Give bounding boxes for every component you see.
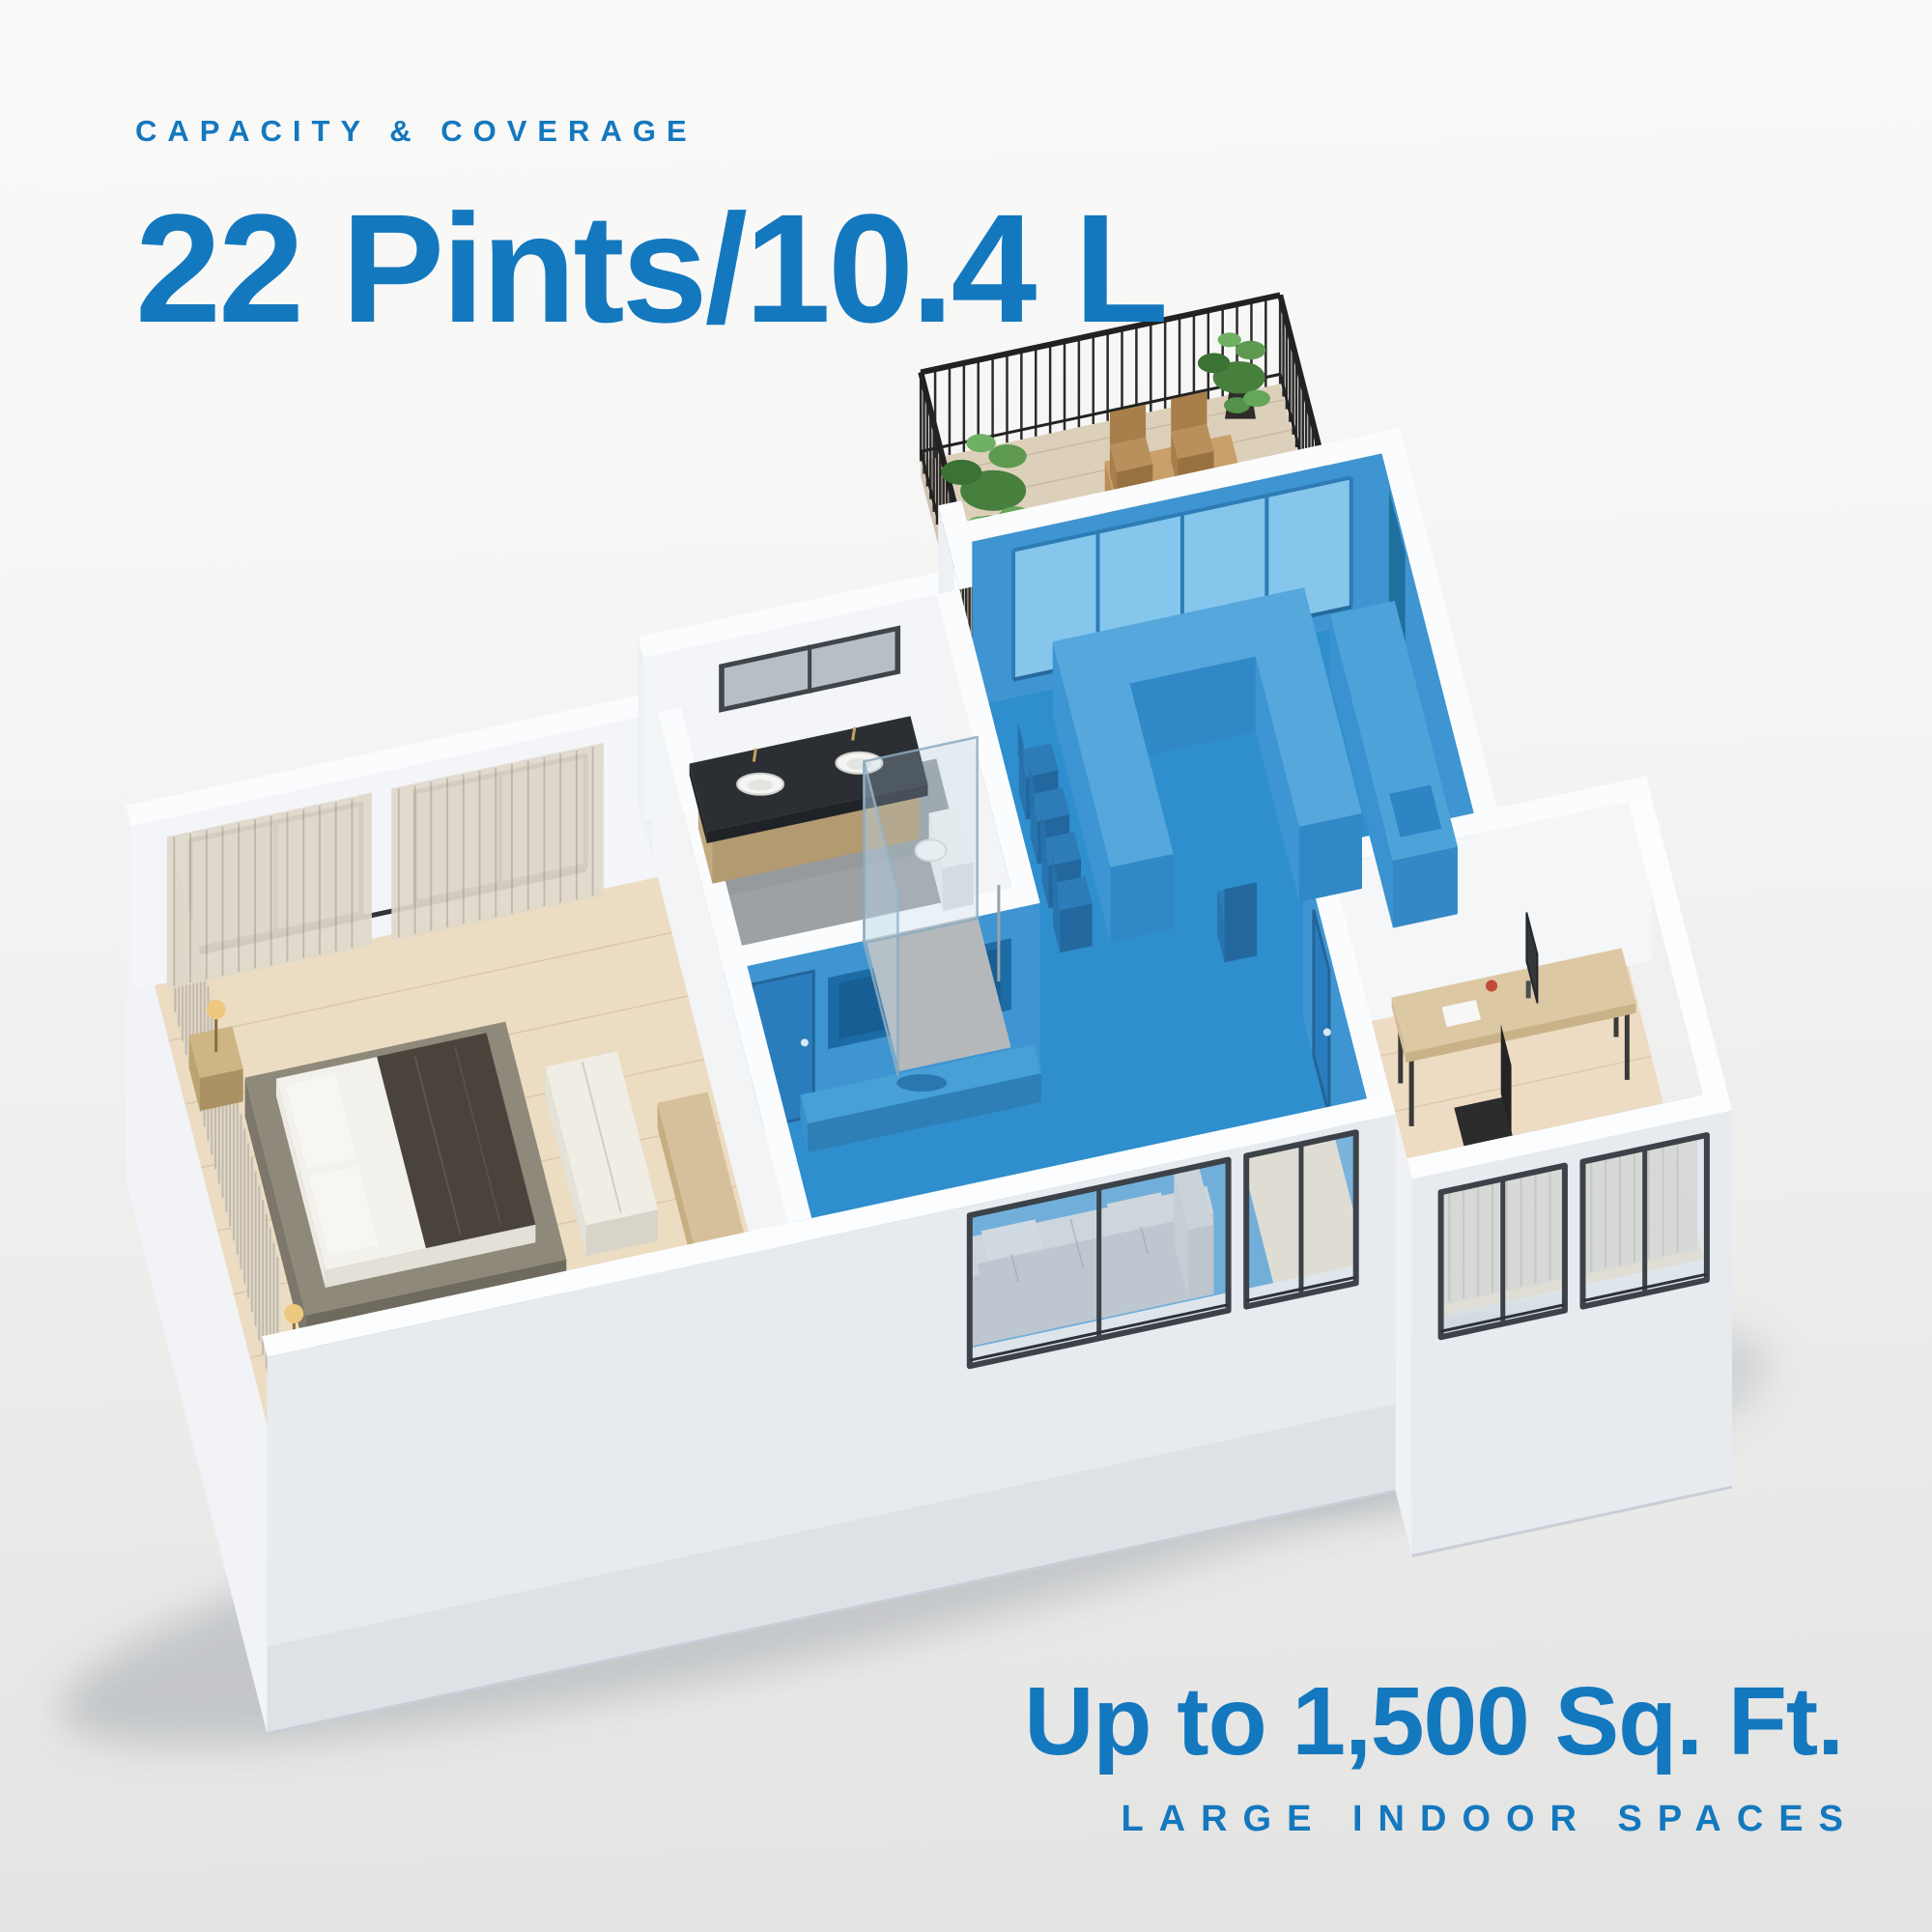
page-title: 22 Pints/10.4 L <box>135 191 1166 346</box>
coverage-headline: Up to 1,500 Sq. Ft. <box>1024 1673 1843 1770</box>
coverage-block: Up to 1,500 Sq. Ft. LARGE INDOOR SPACES <box>1024 1673 1843 1840</box>
coverage-subheadline: LARGE INDOOR SPACES <box>1024 1799 1859 1840</box>
page-background: CAPACITY & COVERAGE 22 Pints/10.4 L Up t… <box>0 0 1932 1932</box>
header-eyebrow: CAPACITY & COVERAGE <box>135 114 1166 149</box>
header-block: CAPACITY & COVERAGE 22 Pints/10.4 L <box>135 114 1166 346</box>
